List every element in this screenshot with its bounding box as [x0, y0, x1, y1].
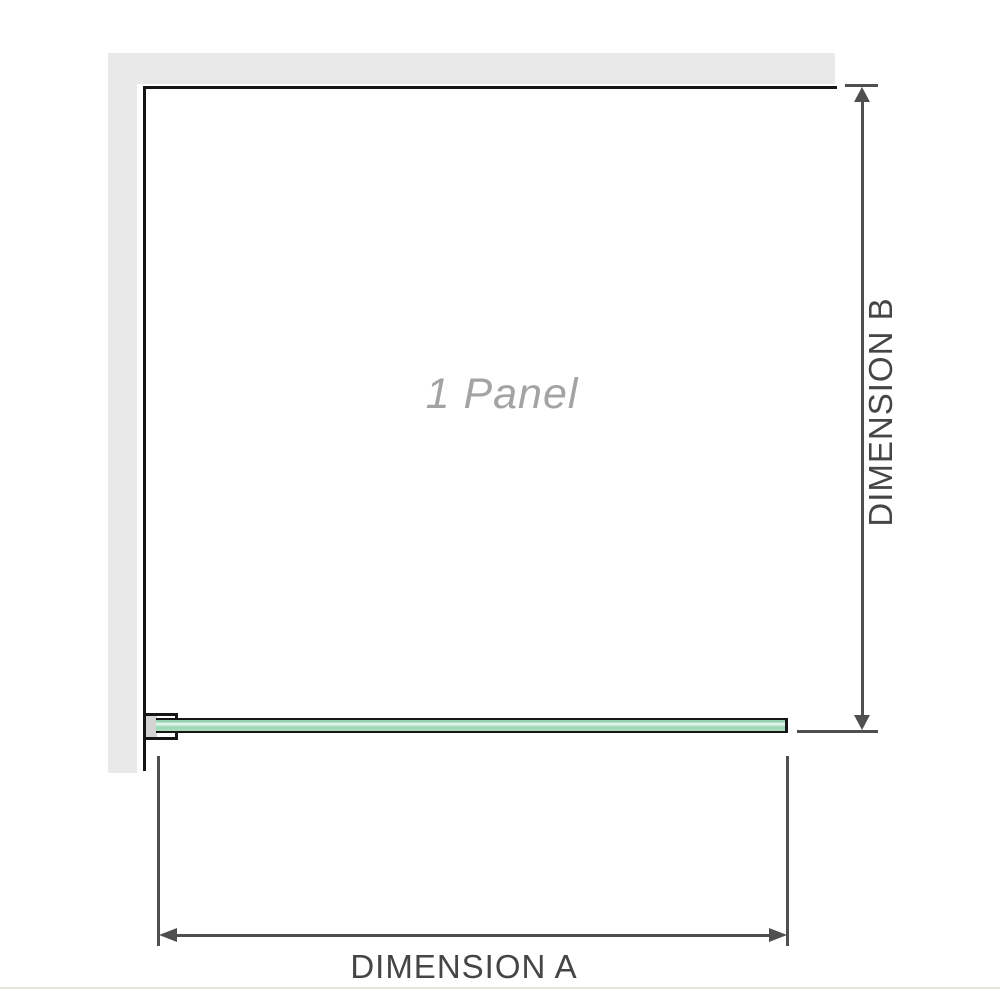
- dimension-b-arrow-down-icon: [854, 715, 870, 730]
- dimension-a-extension-right: [786, 756, 789, 946]
- wall-left: [108, 53, 137, 773]
- panel-outline-left: [143, 86, 146, 771]
- dimension-a-label: DIMENSION A: [350, 948, 577, 986]
- dimension-a-extension-left: [157, 756, 160, 946]
- glass-panel: [156, 718, 788, 733]
- dimension-b-tick-bottom: [797, 730, 878, 733]
- wall-top: [108, 53, 835, 84]
- panel-outline-top: [143, 86, 837, 89]
- diagram-canvas: 1 Panel DIMENSION B DIMENSION A: [0, 0, 1000, 1000]
- dimension-a-arrow-right-icon: [769, 928, 787, 942]
- panel-count-label: 1 Panel: [426, 370, 579, 419]
- page-baseline: [0, 987, 1000, 989]
- dimension-a-line: [175, 934, 771, 937]
- dimension-b-label: DIMENSION B: [862, 297, 900, 526]
